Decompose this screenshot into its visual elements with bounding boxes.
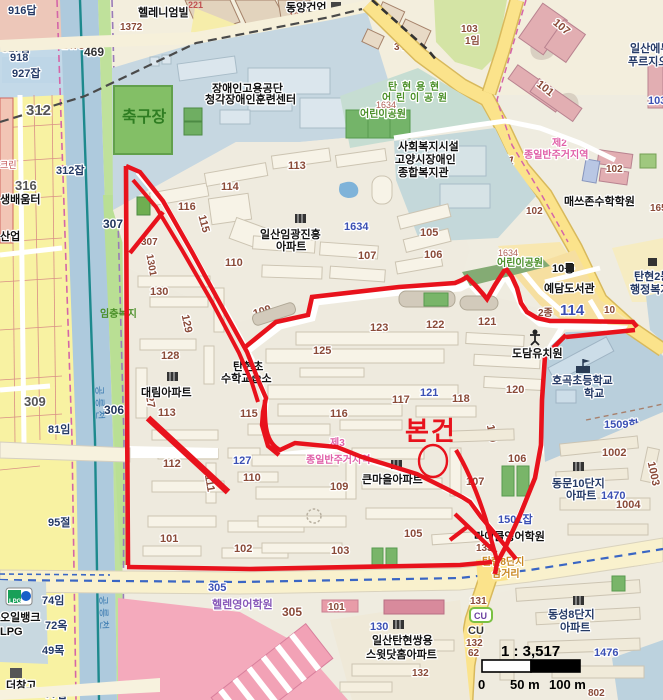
svg-text:본건: 본건 <box>405 416 457 446</box>
svg-text:행정복지: 행정복지 <box>630 282 663 296</box>
svg-text:802: 802 <box>588 688 605 699</box>
svg-text:130: 130 <box>150 286 168 298</box>
svg-text:307: 307 <box>103 217 123 231</box>
svg-text:130: 130 <box>370 621 388 633</box>
svg-text:임충녹지: 임충녹지 <box>100 307 137 320</box>
svg-text:106: 106 <box>508 453 526 465</box>
svg-text:107: 107 <box>358 250 376 262</box>
svg-text:축구장: 축구장 <box>122 108 166 126</box>
svg-text:101: 101 <box>328 602 345 613</box>
svg-text:312잡: 312잡 <box>56 163 84 177</box>
svg-text:예담도서관: 예담도서관 <box>544 281 595 295</box>
svg-text:종합복지관: 종합복지관 <box>398 165 449 179</box>
svg-text:탄현2동: 탄현2동 <box>634 269 663 283</box>
svg-text:일산에듀: 일산에듀 <box>630 41 663 55</box>
svg-text:116: 116 <box>330 408 348 420</box>
svg-text:103: 103 <box>331 545 349 557</box>
svg-text:CU: CU <box>474 611 487 621</box>
svg-text:청각장애인훈련센터: 청각장애인훈련센터 <box>205 92 296 106</box>
svg-text:100 m: 100 m <box>549 677 586 692</box>
svg-text:103: 103 <box>461 24 478 35</box>
svg-text:1634: 1634 <box>344 221 369 233</box>
svg-text:동문10단지: 동문10단지 <box>552 476 605 490</box>
svg-text:221: 221 <box>188 0 203 10</box>
svg-text:316: 316 <box>15 178 37 193</box>
svg-text:113: 113 <box>288 160 306 172</box>
svg-text:생배움터: 생배움터 <box>0 192 40 206</box>
svg-text:927잡: 927잡 <box>12 66 40 80</box>
svg-text:113: 113 <box>158 407 176 419</box>
svg-text:1002: 1002 <box>602 447 626 459</box>
svg-text:115: 115 <box>240 408 258 420</box>
svg-text:110: 110 <box>225 257 243 269</box>
svg-text:309: 309 <box>24 394 46 409</box>
svg-text:312: 312 <box>26 102 51 119</box>
svg-text:49목: 49목 <box>42 644 64 657</box>
svg-text:1476: 1476 <box>594 647 618 659</box>
svg-text:916답: 916답 <box>8 3 36 17</box>
svg-text:102: 102 <box>526 206 543 217</box>
svg-text:95절: 95절 <box>48 516 70 529</box>
svg-text:127: 127 <box>233 455 251 467</box>
svg-text:116: 116 <box>178 201 196 213</box>
svg-text:121: 121 <box>478 316 496 328</box>
svg-text:장애인고용공단: 장애인고용공단 <box>212 81 283 95</box>
svg-text:고양시장애인: 고양시장애인 <box>395 152 456 166</box>
svg-text:305: 305 <box>208 582 226 594</box>
svg-text:헬레니엄빌: 헬레니엄빌 <box>138 5 189 19</box>
svg-text:도담유치원: 도담유치원 <box>512 346 563 360</box>
svg-text:81임: 81임 <box>48 423 70 436</box>
svg-text:LPG: LPG <box>0 626 23 638</box>
svg-text:117: 117 <box>392 394 410 406</box>
svg-text:1634: 1634 <box>376 100 396 110</box>
svg-text:114: 114 <box>221 181 240 193</box>
svg-text:헬렌영어학원: 헬렌영어학원 <box>212 597 273 611</box>
svg-text:121: 121 <box>420 387 438 399</box>
svg-text:공릉천: 공릉천 <box>97 596 110 633</box>
svg-text:128: 128 <box>161 350 179 362</box>
svg-text:푸르지오: 푸르지오 <box>628 54 663 68</box>
svg-text:132: 132 <box>412 668 429 679</box>
svg-text:일산탄현쌍용: 일산탄현쌍용 <box>372 633 433 647</box>
svg-text:102: 102 <box>234 543 252 555</box>
svg-text:매쓰존수학학원: 매쓰존수학학원 <box>564 194 635 208</box>
svg-text:62: 62 <box>468 648 480 659</box>
svg-text:동성8단지: 동성8단지 <box>548 607 595 621</box>
svg-text:105: 105 <box>420 227 438 239</box>
svg-text:109: 109 <box>330 481 348 493</box>
svg-text:1634: 1634 <box>498 248 518 258</box>
svg-text:사회복지시설: 사회복지시설 <box>398 139 459 153</box>
svg-text:아파트: 아파트 <box>566 488 596 502</box>
svg-text:103: 103 <box>648 95 663 107</box>
svg-text:123: 123 <box>370 322 388 334</box>
svg-text:72옥: 72옥 <box>45 619 67 632</box>
svg-text:120: 120 <box>506 384 524 396</box>
svg-text:1470: 1470 <box>601 490 625 502</box>
svg-text:102: 102 <box>606 164 623 175</box>
svg-text:118: 118 <box>452 393 470 405</box>
svg-text:공릉천: 공릉천 <box>93 386 106 423</box>
svg-text:호곡초등학교: 호곡초등학교 <box>552 373 613 387</box>
svg-text:114: 114 <box>560 302 585 319</box>
svg-text:학교: 학교 <box>584 386 604 400</box>
svg-text:106: 106 <box>424 249 442 261</box>
svg-text:크린: 크린 <box>0 160 17 170</box>
svg-text:오일뱅크: 오일뱅크 <box>0 610 40 624</box>
svg-text:1 : 3,517: 1 : 3,517 <box>501 643 560 660</box>
svg-text:918: 918 <box>10 52 28 64</box>
svg-text:131: 131 <box>470 596 487 607</box>
svg-text:대림아파트: 대림아파트 <box>141 385 192 399</box>
svg-text:1임: 1임 <box>465 34 480 47</box>
svg-text:LPG: LPG <box>9 599 22 605</box>
svg-text:101: 101 <box>160 533 178 545</box>
svg-text:306: 306 <box>104 403 124 417</box>
svg-text:105: 105 <box>404 528 422 540</box>
svg-text:종일반주거지역: 종일반주거지역 <box>524 148 588 161</box>
svg-text:산업: 산업 <box>0 229 20 243</box>
svg-text:CU: CU <box>468 625 484 637</box>
svg-text:10: 10 <box>604 305 616 316</box>
svg-text:아파트: 아파트 <box>276 239 306 253</box>
svg-text:165: 165 <box>650 203 663 214</box>
svg-text:122: 122 <box>426 319 444 331</box>
svg-text:74임: 74임 <box>42 594 64 607</box>
svg-text:아파트: 아파트 <box>560 620 590 634</box>
svg-text:0: 0 <box>478 677 485 692</box>
svg-text:112: 112 <box>163 458 181 470</box>
svg-text:1372: 1372 <box>120 22 143 33</box>
svg-text:125: 125 <box>313 345 331 357</box>
svg-text:탄 현 용 현: 탄 현 용 현 <box>388 80 440 93</box>
svg-text:305: 305 <box>282 605 302 619</box>
svg-text:50 m: 50 m <box>510 677 540 692</box>
svg-text:스윗닷홈아파트: 스윗닷홈아파트 <box>366 647 437 661</box>
svg-text:일산임광진흥: 일산임광진흥 <box>260 227 321 241</box>
svg-text:110: 110 <box>243 472 261 484</box>
